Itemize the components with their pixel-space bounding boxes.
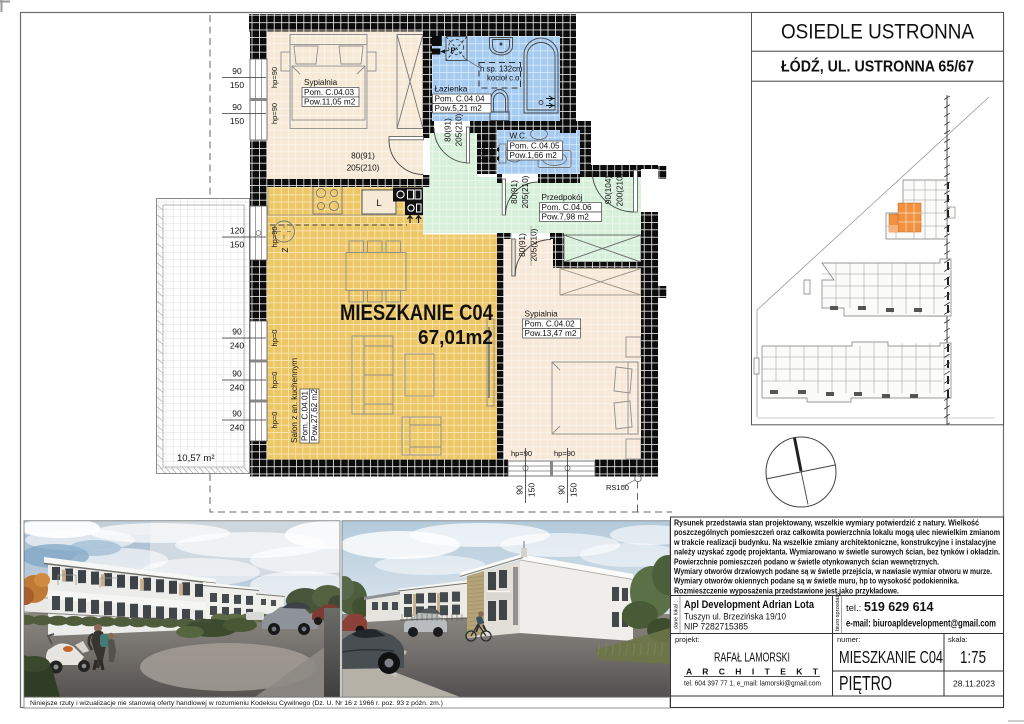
- svg-text:skala:: skala:: [948, 635, 968, 644]
- svg-text:hp=90: hp=90: [511, 449, 532, 458]
- svg-text:205(210): 205(210): [455, 113, 464, 146]
- svg-text:205(210): 205(210): [521, 175, 530, 208]
- svg-text:150: 150: [230, 240, 244, 250]
- svg-text:Pom. C.04.04: Pom. C.04.04: [435, 95, 486, 104]
- svg-text:10,57 m²: 10,57 m²: [177, 453, 215, 464]
- svg-text:Powierzchnie pomieszczeń podan: Powierzchnie pomieszczeń podano w świetl…: [674, 557, 939, 566]
- svg-text:Wymiary otworów drzwiowych pod: Wymiary otworów drzwiowych podane są w ś…: [674, 567, 992, 576]
- svg-text:90: 90: [232, 369, 242, 379]
- svg-text:Pom. C.04.01: Pom. C.04.01: [301, 390, 310, 441]
- svg-text:150: 150: [230, 116, 244, 126]
- svg-text:150: 150: [569, 483, 579, 497]
- svg-text:hp=0: hp=0: [270, 372, 279, 389]
- svg-text:h sp. 132cm: h sp. 132cm: [480, 65, 522, 74]
- svg-text:Pow.7,98 m2: Pow.7,98 m2: [542, 213, 590, 222]
- svg-text:80(91): 80(91): [351, 152, 375, 161]
- svg-text:90: 90: [232, 102, 242, 112]
- svg-text:Sypialnia: Sypialnia: [525, 310, 559, 319]
- svg-text:tel.: 519 629 614: tel.: 519 629 614: [846, 600, 934, 614]
- svg-text:OSIEDLE USTRONNA: OSIEDLE USTRONNA: [781, 21, 974, 44]
- svg-text:Z: Z: [281, 247, 290, 252]
- svg-text:poszczególnych pomieszczeń ora: poszczególnych pomieszczeń oraz całkowit…: [674, 528, 1000, 537]
- svg-text:MIESZKANIE C04: MIESZKANIE C04: [839, 647, 943, 667]
- svg-text:90: 90: [232, 327, 242, 337]
- svg-text:Łazienka: Łazienka: [435, 85, 468, 94]
- svg-text:NIP 7282715385: NIP 7282715385: [684, 622, 748, 633]
- svg-text:Pow.5,21 m2: Pow.5,21 m2: [435, 104, 483, 113]
- svg-text:240: 240: [230, 383, 244, 393]
- svg-text:hp=90: hp=90: [270, 226, 279, 247]
- svg-text:120: 120: [230, 226, 244, 236]
- svg-text:W.C.: W.C.: [510, 132, 528, 141]
- svg-text:90: 90: [515, 485, 525, 495]
- svg-text:Pom. C.04.05: Pom. C.04.05: [510, 142, 561, 151]
- svg-text:numer:: numer:: [837, 635, 860, 644]
- svg-text:90: 90: [557, 485, 567, 495]
- svg-text:Pow.1,66 m2: Pow.1,66 m2: [510, 151, 558, 160]
- svg-text:80(91): 80(91): [444, 118, 453, 142]
- svg-text:P: P: [451, 46, 456, 55]
- svg-text:tel. 604 397 77 1, e_ma: tel. 604 397 77 1, e_mail: lamorski@gmai…: [684, 681, 821, 688]
- svg-text:90: 90: [232, 66, 242, 76]
- svg-text:RS100: RS100: [606, 483, 629, 492]
- svg-text:projekt:: projekt:: [675, 635, 700, 644]
- svg-text:90: 90: [232, 409, 242, 419]
- svg-text:hp=90: hp=90: [554, 449, 575, 458]
- svg-text:Pow.13,47 m2: Pow.13,47 m2: [525, 329, 577, 338]
- svg-text:Rysunek przedstawia stan proje: Rysunek przedstawia stan projektowany, w…: [674, 519, 979, 528]
- svg-text:80(91): 80(91): [510, 180, 519, 204]
- svg-text:biuro sprzedaży:: biuro sprzedaży:: [835, 590, 841, 631]
- svg-text:1:75: 1:75: [960, 647, 986, 667]
- svg-text:240: 240: [230, 341, 244, 351]
- svg-text:Apl Development Adrian Lota: Apl Development Adrian Lota: [684, 599, 815, 611]
- svg-text:90(104): 90(104): [604, 176, 613, 204]
- svg-text:L: L: [376, 198, 381, 209]
- svg-text:P.SUS: P.SUS: [481, 147, 487, 162]
- svg-text:kocioł c.o.: kocioł c.o.: [487, 74, 522, 83]
- svg-text:hp=90: hp=90: [270, 67, 279, 88]
- svg-text:Sypialnia: Sypialnia: [304, 78, 338, 87]
- svg-text:hp=0: hp=0: [270, 412, 279, 429]
- svg-text:Przedpokój: Przedpokój: [542, 193, 583, 202]
- svg-text:P.SUS: P.SUS: [489, 147, 495, 162]
- svg-text:Niniejsze rzuty i wizualizacje: Niniejsze rzuty i wizualizacje nie stano…: [30, 700, 443, 707]
- svg-text:2.0: 2.0: [433, 40, 441, 46]
- svg-text:240: 240: [230, 423, 244, 433]
- svg-text:Rozmieszczenie wyposażenia prz: Rozmieszczenie wyposażenia przedstawione…: [674, 586, 899, 595]
- svg-text:Pow.11,05 m2: Pow.11,05 m2: [304, 98, 356, 107]
- svg-text:Wymiary otworów okiennych poda: Wymiary otworów okiennych podane są w św…: [674, 577, 959, 586]
- svg-text:150: 150: [230, 80, 244, 90]
- svg-text:Pow.27,62 m2: Pow.27,62 m2: [310, 389, 319, 441]
- svg-text:e-mail: biuroapldevelopment@gm: e-mail: biuroapldevelopment@gmail.com: [846, 619, 996, 630]
- svg-text:hp=90: hp=90: [270, 103, 279, 124]
- svg-text:należy uzyskać zgodę projektan: należy uzyskać zgodę projektanta. Wymiar…: [674, 548, 1000, 557]
- svg-text:80(91): 80(91): [518, 233, 527, 257]
- svg-text:PIĘTRO: PIĘTRO: [839, 673, 892, 695]
- svg-text:L.1: L.1: [433, 50, 440, 56]
- svg-text:Salon z an. kuchennym: Salon z an. kuchennym: [290, 358, 299, 443]
- svg-text:200(210): 200(210): [616, 173, 625, 206]
- svg-text:Pom. C.04.03: Pom. C.04.03: [304, 88, 355, 97]
- svg-text:67,01m2: 67,01m2: [418, 326, 493, 349]
- svg-text:150: 150: [527, 483, 537, 497]
- svg-text:28.11.2023: 28.11.2023: [953, 679, 995, 689]
- svg-text:RAFAŁ LAMORSKI: RAFAŁ LAMORSKI: [714, 651, 790, 665]
- svg-text:ŁÓDŹ, UL. USTRONNA 65/67: ŁÓDŹ, UL. USTRONNA 65/67: [781, 58, 974, 76]
- svg-text:Pom. C.04.02: Pom. C.04.02: [525, 320, 576, 329]
- svg-text:dane lokal :: dane lokal :: [674, 600, 680, 629]
- svg-text:A R C H I T E K T: A R C H I T E K T: [686, 667, 819, 677]
- svg-text:Pom. C.04.06: Pom. C.04.06: [542, 203, 593, 212]
- svg-text:w trakcie realizacji budynku.: w trakcie realizacji budynku. Na wszelki…: [673, 538, 996, 547]
- svg-text:205(210): 205(210): [347, 164, 380, 173]
- svg-text:hp=0: hp=0: [270, 330, 279, 347]
- svg-text:MIESZKANIE C04: MIESZKANIE C04: [340, 300, 494, 325]
